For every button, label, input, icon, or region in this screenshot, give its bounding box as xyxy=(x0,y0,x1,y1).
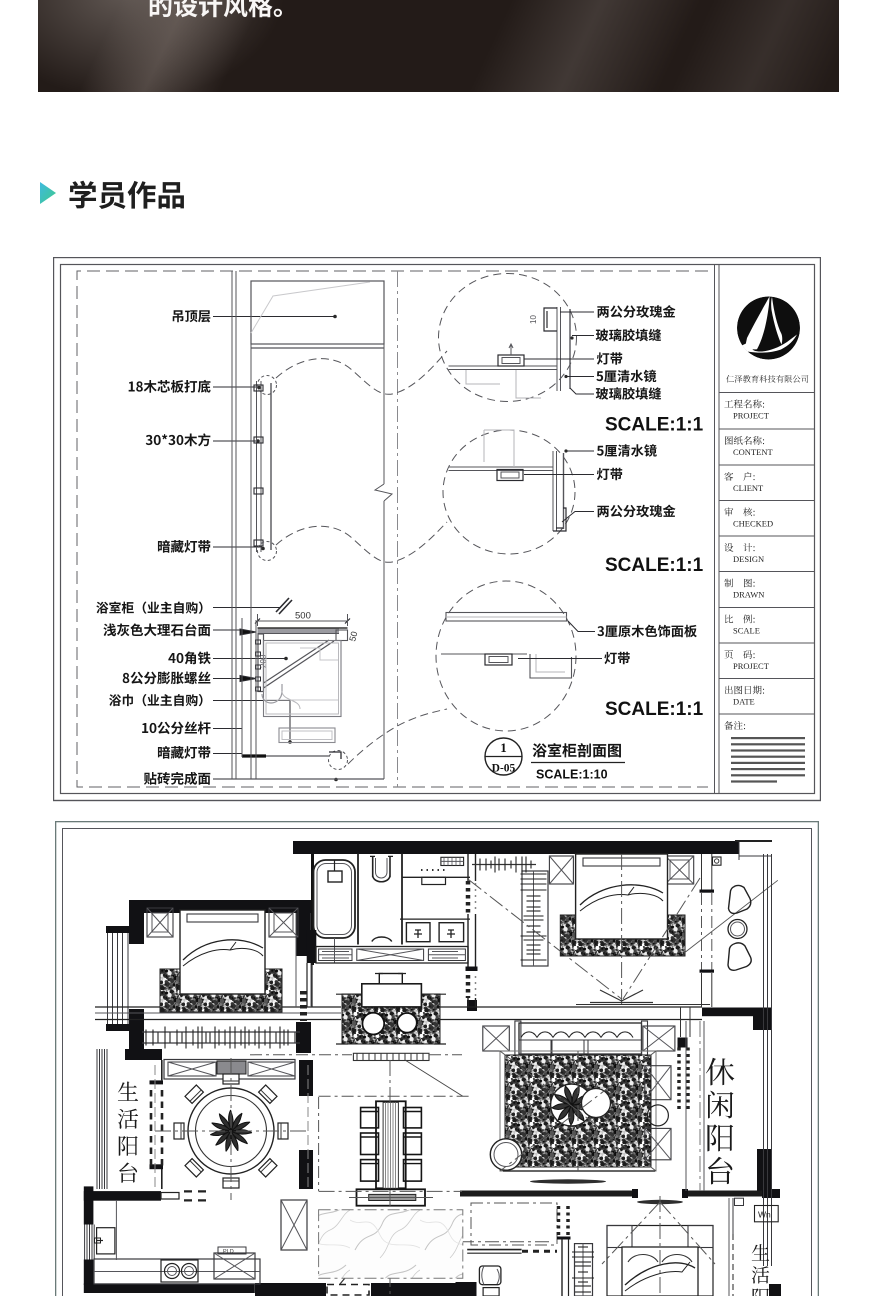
svg-text:CLIENT: CLIENT xyxy=(733,483,764,493)
svg-text:PLD: PLD xyxy=(223,1249,234,1255)
svg-text:DRAWN: DRAWN xyxy=(733,590,764,600)
svg-text:1: 1 xyxy=(500,740,507,755)
svg-text:500: 500 xyxy=(295,611,311,622)
svg-text:PROJECT: PROJECT xyxy=(733,661,770,671)
svg-text:Wn: Wn xyxy=(758,1210,771,1220)
svg-text:DESIGN: DESIGN xyxy=(733,554,764,564)
svg-text:50: 50 xyxy=(347,630,359,642)
svg-text:CHECKED: CHECKED xyxy=(733,519,773,529)
svg-text:PROJECT: PROJECT xyxy=(733,411,770,421)
svg-text:SCALE:1:1: SCALE:1:1 xyxy=(605,415,704,436)
svg-text:SCALE: SCALE xyxy=(733,626,760,636)
svg-text:CONTENT: CONTENT xyxy=(733,447,773,457)
svg-text:DATE: DATE xyxy=(733,697,755,707)
svg-text:10: 10 xyxy=(529,315,538,324)
svg-text:D-05: D-05 xyxy=(492,763,516,775)
svg-text:SCALE:1:1: SCALE:1:1 xyxy=(605,699,704,720)
svg-text:SCALE:1:1: SCALE:1:1 xyxy=(605,555,704,576)
svg-text:SCALE:1:10: SCALE:1:10 xyxy=(536,768,608,782)
